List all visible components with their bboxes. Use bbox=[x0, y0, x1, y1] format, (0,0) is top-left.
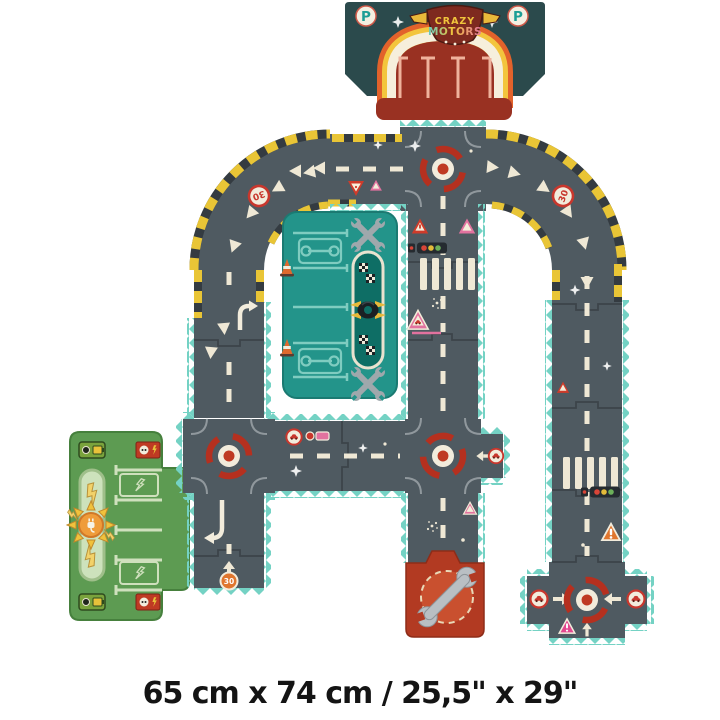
plug-socket-icon bbox=[136, 594, 160, 610]
parking-lot-base bbox=[376, 98, 512, 120]
small-red-sign bbox=[306, 432, 314, 440]
car-sign bbox=[628, 591, 645, 608]
traffic-light-icon bbox=[581, 487, 620, 498]
battery-charger-icon bbox=[79, 594, 105, 610]
piece-workshop-garage bbox=[280, 212, 397, 403]
piece-wrench-end bbox=[406, 551, 484, 637]
piece-charging-station bbox=[66, 432, 189, 620]
dimensions-caption: 65 cm x 74 cm / 25,5" x 29" bbox=[0, 676, 720, 711]
brand-badge-line2: MOTORS bbox=[428, 26, 482, 38]
battery-charger-icon bbox=[79, 442, 105, 458]
parking-lot bbox=[396, 41, 494, 108]
piece-parking-garage: P P CRAZY MOTORS bbox=[345, 2, 545, 120]
car-sign bbox=[286, 429, 301, 444]
parking-sign: P bbox=[356, 6, 376, 26]
svg-text:30: 30 bbox=[224, 577, 234, 586]
traffic-light-icon bbox=[408, 243, 447, 254]
svg-text:P: P bbox=[361, 9, 371, 25]
plug-socket-icon bbox=[136, 442, 160, 458]
svg-text:P: P bbox=[513, 9, 523, 25]
speed-limit-30-sign: 30 bbox=[221, 573, 238, 590]
product-image: 30 30 30 bbox=[0, 0, 720, 720]
product-illustration: 30 30 30 bbox=[0, 0, 720, 720]
car-sign bbox=[489, 449, 503, 463]
parking-sign: P bbox=[508, 6, 528, 26]
car-sign bbox=[531, 591, 548, 608]
small-pink-sign bbox=[316, 432, 329, 440]
